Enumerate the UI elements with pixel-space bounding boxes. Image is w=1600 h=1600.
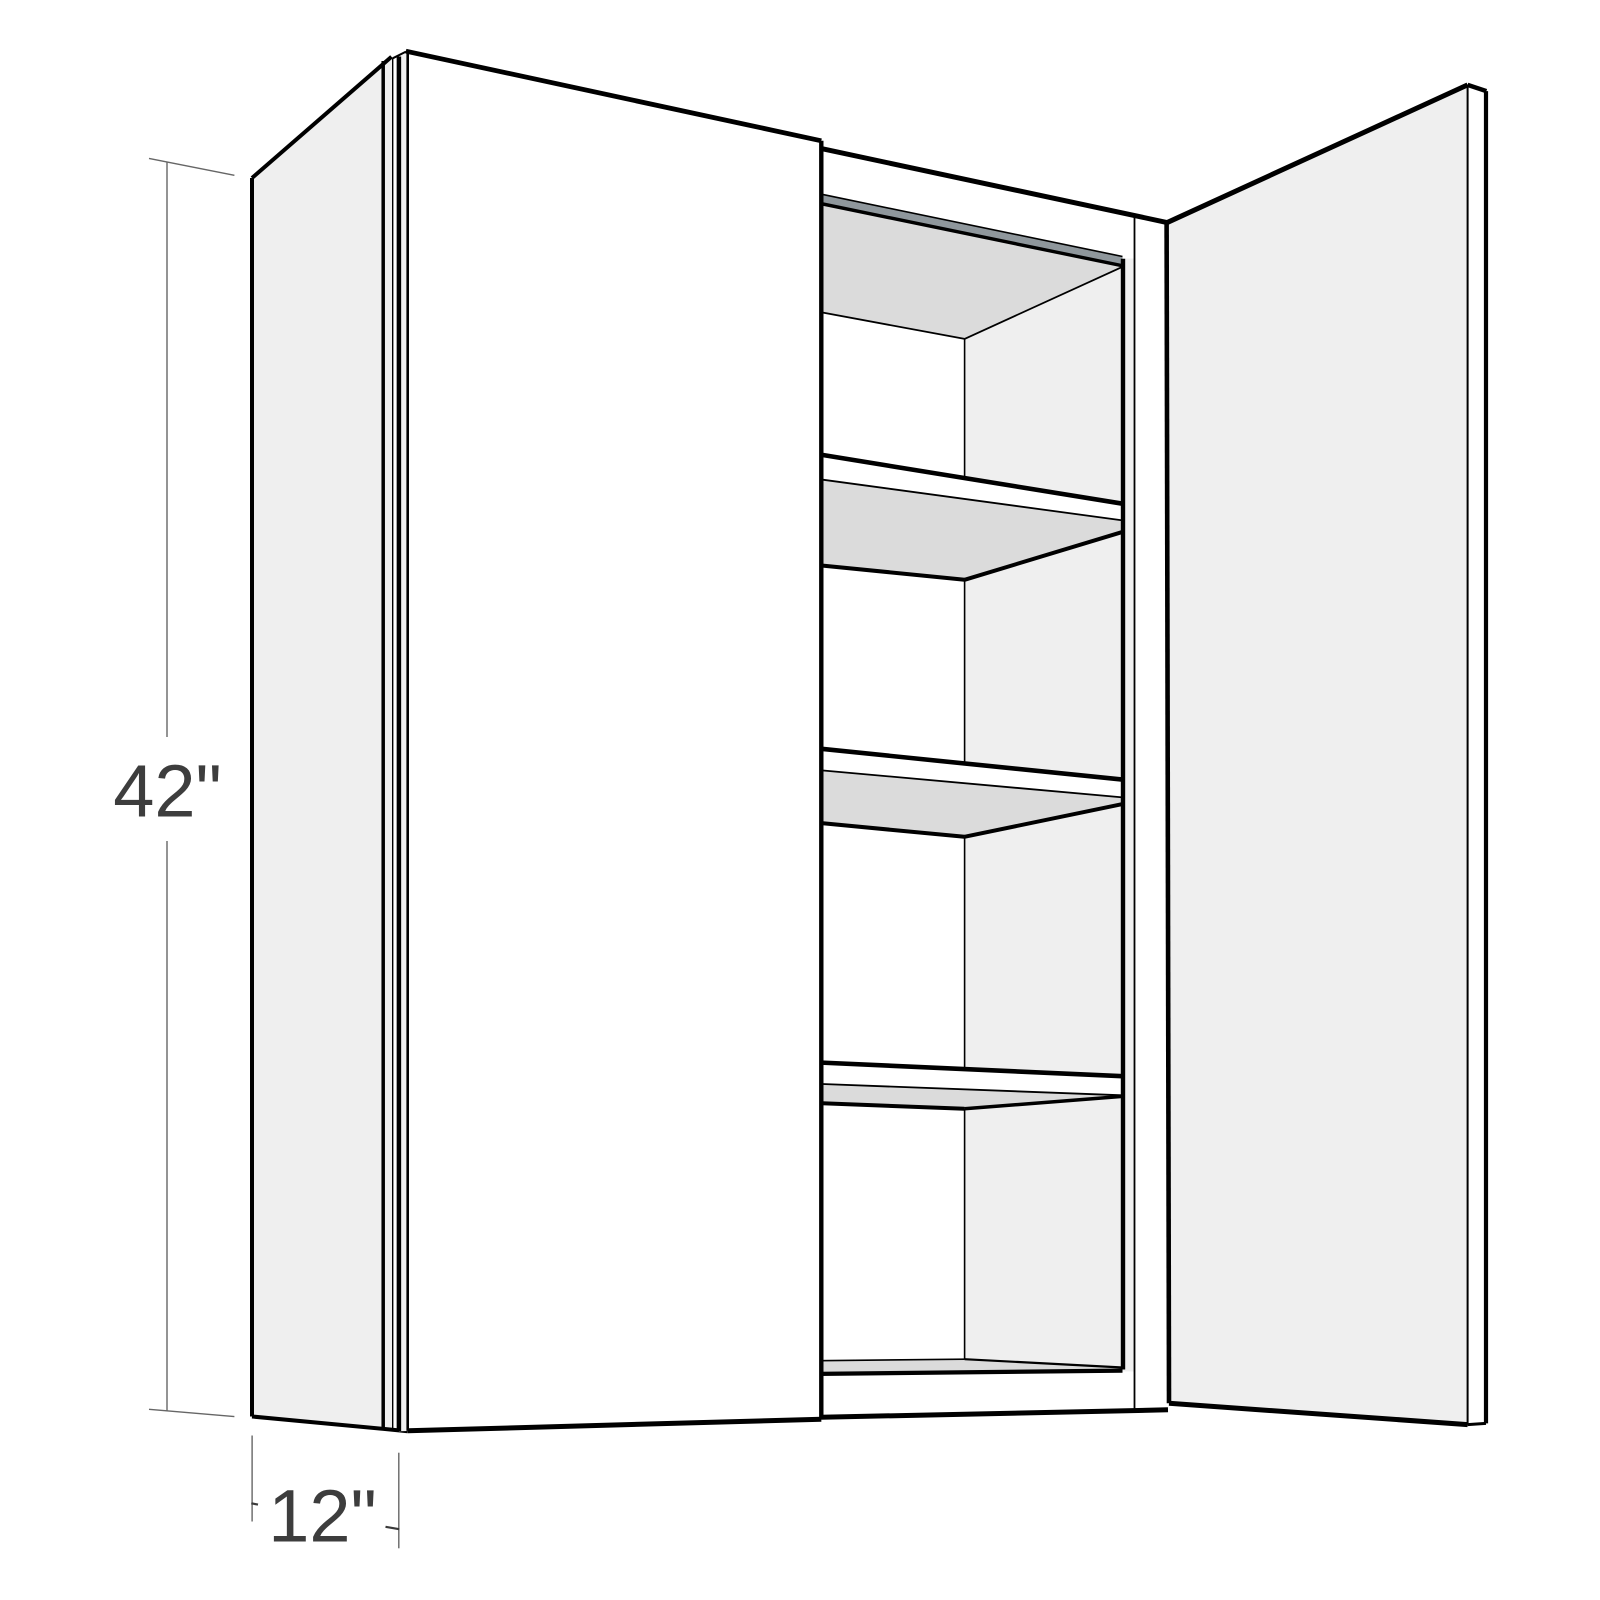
svg-text:42": 42" [113,750,222,833]
svg-text:12": 12" [268,1475,377,1558]
